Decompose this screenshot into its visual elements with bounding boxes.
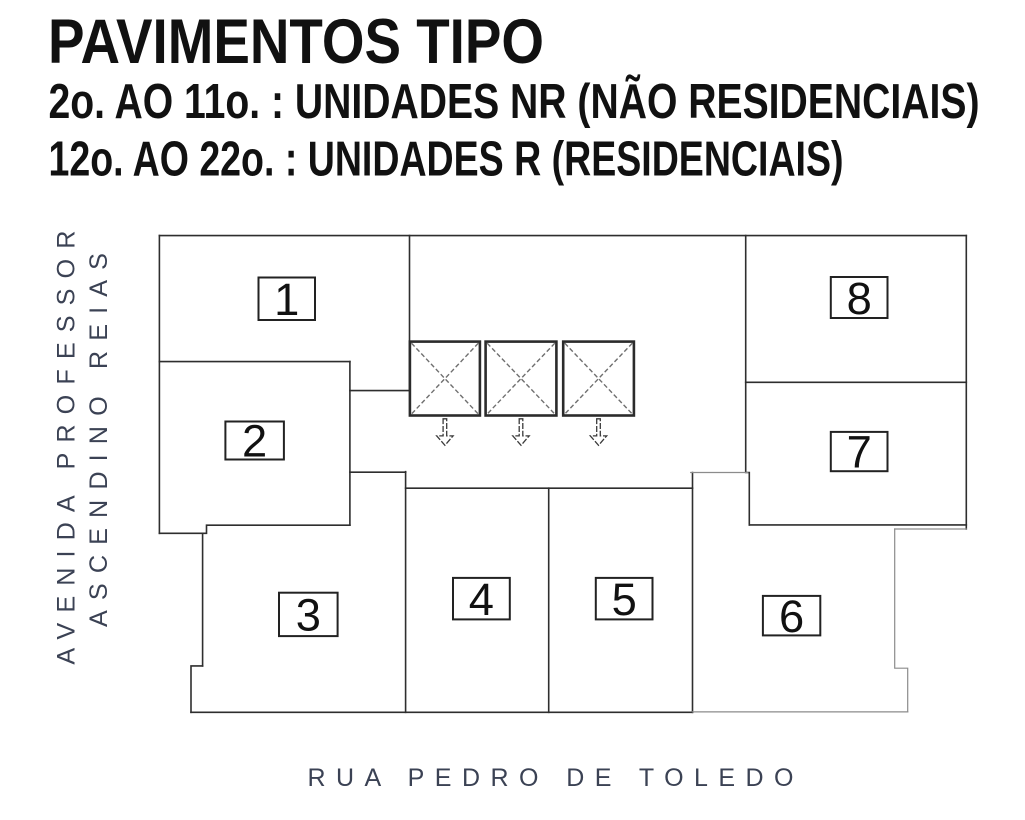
svg-text:1: 1 <box>274 274 299 325</box>
svg-text:7: 7 <box>847 427 872 478</box>
svg-text:2: 2 <box>242 416 267 467</box>
svg-text:3: 3 <box>296 590 321 641</box>
svg-text:8: 8 <box>847 273 872 324</box>
svg-text:6: 6 <box>779 591 804 642</box>
svg-text:PAVIMENTOS TIPO: PAVIMENTOS TIPO <box>48 7 544 77</box>
svg-text:12o. AO 22o. : UNIDADES R (RES: 12o. AO 22o. : UNIDADES R (RESIDENCIAIS) <box>49 133 844 187</box>
svg-text:4: 4 <box>469 574 494 625</box>
svg-text:5: 5 <box>612 574 637 625</box>
svg-text:2o. AO 11o. : UNIDADES NR (NÃO: 2o. AO 11o. : UNIDADES NR (NÃO RESIDENCI… <box>49 75 980 129</box>
svg-text:ASCENDINO REIAS: ASCENDINO REIAS <box>85 253 113 627</box>
